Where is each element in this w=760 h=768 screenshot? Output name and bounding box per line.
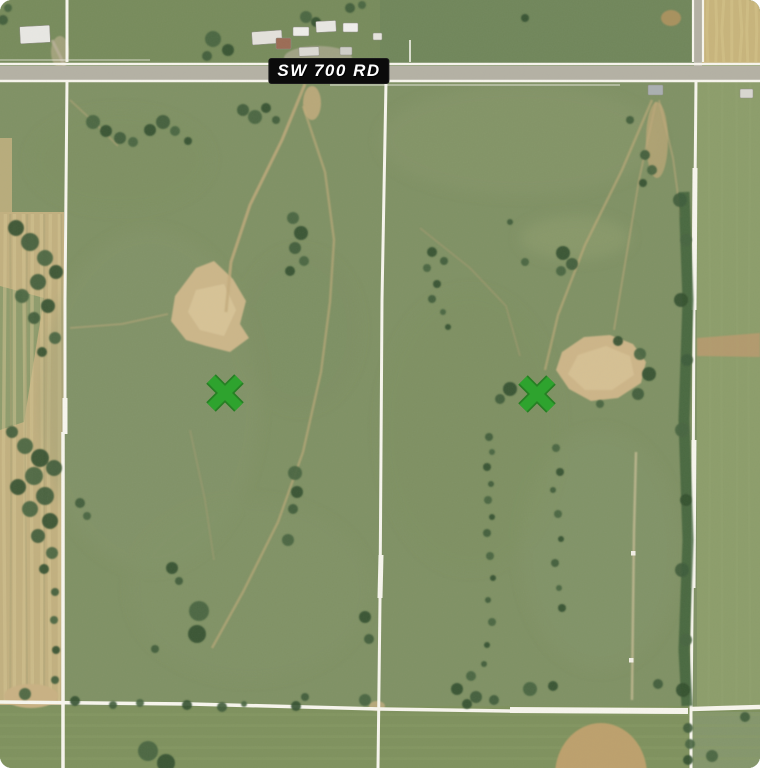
building [340, 47, 352, 55]
building [740, 89, 753, 98]
building [293, 27, 309, 36]
building [316, 20, 337, 32]
map-frame: SW 700 RD [0, 0, 760, 768]
road-label: SW 700 RD [268, 58, 389, 84]
building [343, 23, 358, 32]
building [373, 33, 382, 40]
building [276, 38, 291, 49]
aerial-imagery[interactable] [0, 0, 760, 768]
building [20, 25, 51, 44]
building [299, 47, 319, 57]
page: SW 700 RD [0, 0, 760, 768]
building [648, 85, 663, 95]
